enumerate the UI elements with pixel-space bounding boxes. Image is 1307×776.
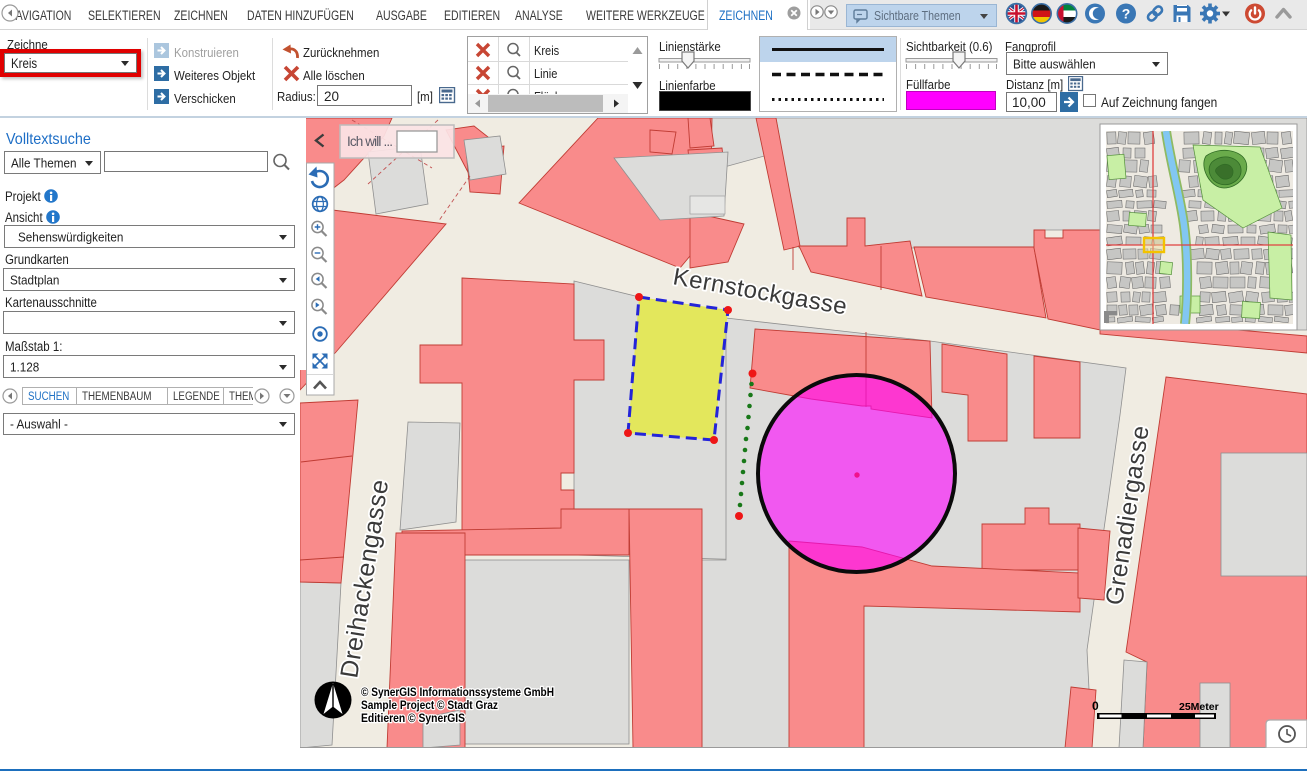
svg-text:Ich will ...: Ich will ...	[347, 134, 393, 149]
svg-text:?: ?	[1122, 6, 1131, 22]
svg-text:0: 0	[1092, 699, 1099, 713]
svg-text:© SynerGIS Informationssysteme: © SynerGIS Informationssysteme GmbH	[361, 687, 554, 699]
svg-text:Sample Project © Stadt Graz: Sample Project © Stadt Graz	[361, 700, 498, 712]
svg-text:Editieren © SynerGIS: Editieren © SynerGIS	[361, 713, 465, 725]
svg-text:25Meter: 25Meter	[1179, 701, 1219, 713]
